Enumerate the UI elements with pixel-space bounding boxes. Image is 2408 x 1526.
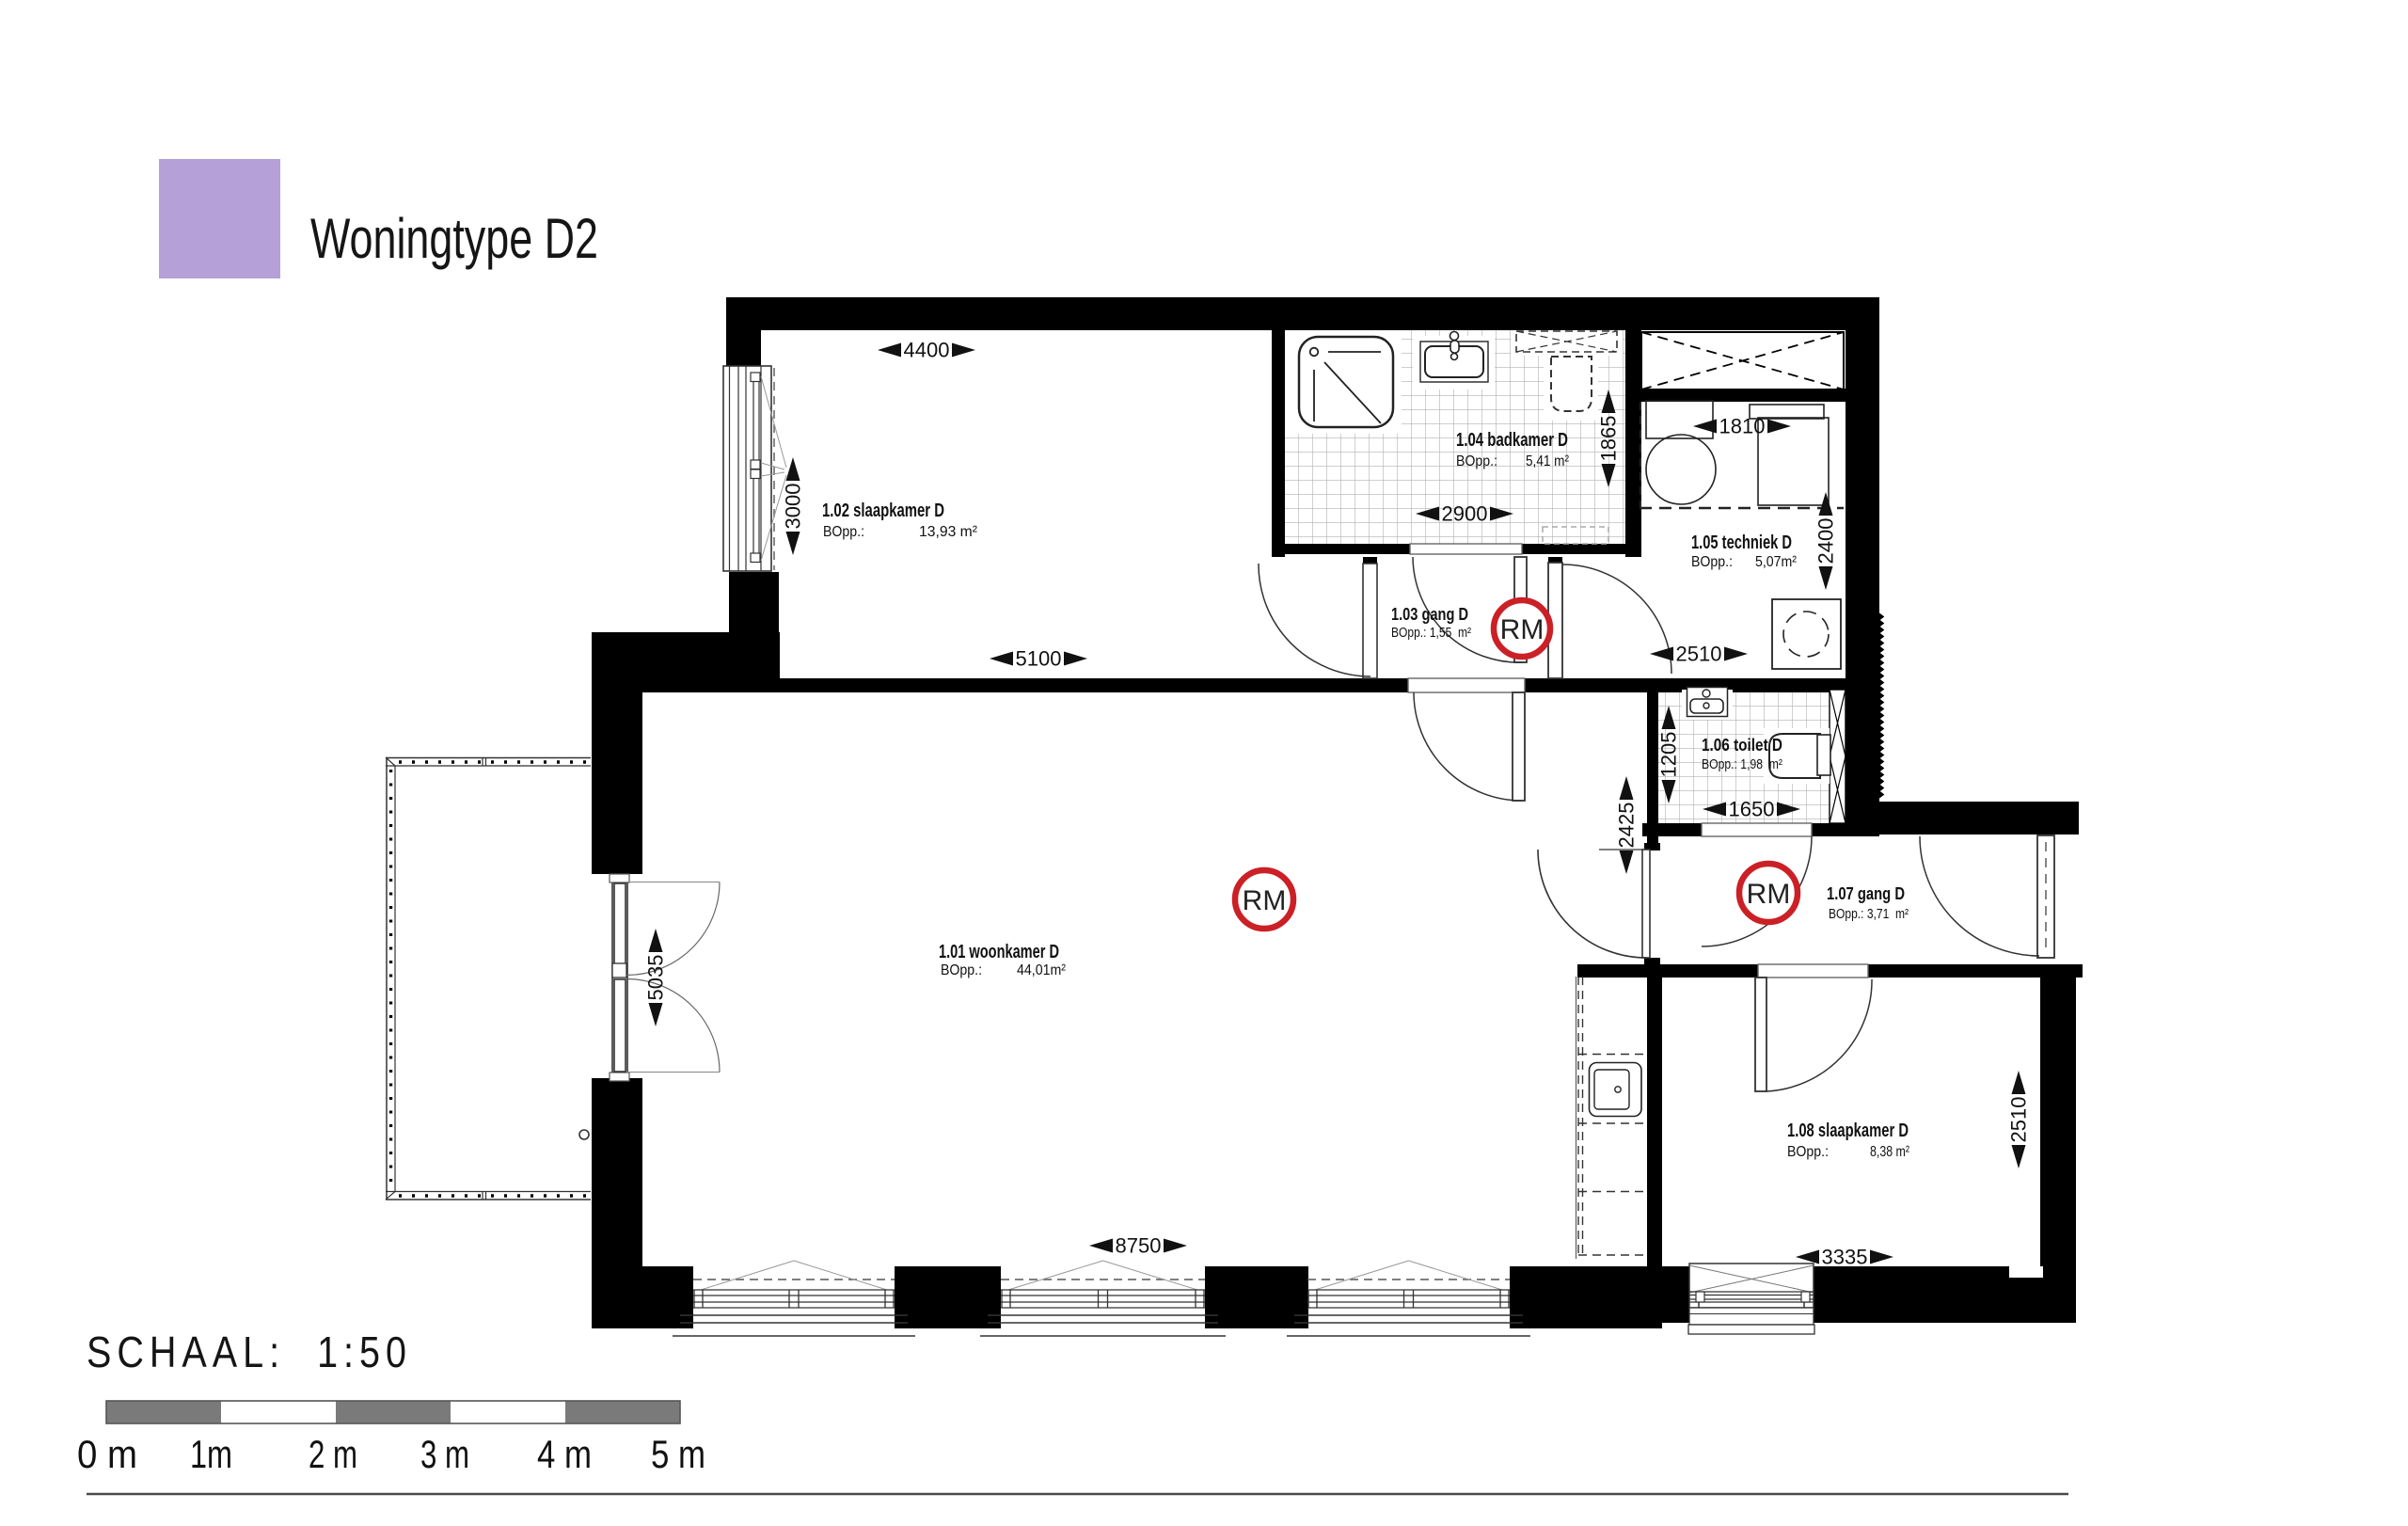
svg-text:1.03 gang D: 1.03 gang D (1391, 605, 1468, 624)
svg-text:1.08 slaapkamer D: 1.08 slaapkamer D (1787, 1121, 1909, 1141)
svg-text:BOpp.:: BOpp.: (941, 962, 982, 978)
svg-text:1205: 1205 (1657, 732, 1681, 778)
svg-text:BOpp.: 1,55 m²: BOpp.: 1,55 m² (1391, 626, 1471, 641)
svg-text:Woningtype D2: Woningtype D2 (310, 207, 598, 270)
svg-text:3000: 3000 (782, 484, 805, 530)
svg-text:5,07m²: 5,07m² (1755, 554, 1798, 570)
svg-text:1.07 gang D: 1.07 gang D (1827, 884, 1905, 903)
svg-text:1.01 woonkamer D: 1.01 woonkamer D (939, 942, 1059, 962)
svg-text:RM: RM (1243, 885, 1287, 916)
svg-text:13,93 m²: 13,93 m² (919, 524, 978, 540)
svg-text:5,41 m²: 5,41 m² (1526, 453, 1570, 469)
svg-text:2510: 2510 (2007, 1097, 2031, 1143)
svg-text:SCHAAL: 1:50: SCHAAL: 1:50 (87, 1327, 412, 1376)
svg-text:BOpp.: 3,71 m²: BOpp.: 3,71 m² (1829, 907, 1909, 922)
svg-text:BOpp.:: BOpp.: (1787, 1144, 1829, 1160)
svg-text:2510: 2510 (1676, 643, 1722, 666)
svg-text:5100: 5100 (1016, 647, 1062, 671)
svg-text:5 m: 5 m (651, 1432, 705, 1476)
svg-text:4400: 4400 (904, 339, 950, 362)
svg-text:2425: 2425 (1615, 803, 1639, 849)
svg-text:8750: 8750 (1116, 1234, 1162, 1258)
svg-text:1m: 1m (190, 1432, 232, 1476)
svg-text:2 m: 2 m (309, 1432, 357, 1476)
svg-text:1.05 techniek D: 1.05 techniek D (1691, 533, 1792, 553)
svg-text:1.06 toilet D: 1.06 toilet D (1702, 736, 1782, 755)
svg-text:1.04 badkamer D: 1.04 badkamer D (1456, 430, 1568, 451)
svg-text:44,01m²: 44,01m² (1017, 962, 1067, 978)
svg-text:RM: RM (1500, 614, 1545, 645)
svg-text:2400: 2400 (1814, 518, 1838, 564)
svg-text:BOpp.: 1,98 m²: BOpp.: 1,98 m² (1702, 757, 1782, 772)
svg-text:1865: 1865 (1597, 416, 1621, 462)
svg-text:BOpp.:: BOpp.: (1691, 554, 1733, 570)
svg-text:3335: 3335 (1822, 1246, 1868, 1269)
svg-text:1810: 1810 (1719, 415, 1766, 438)
svg-text:4 m: 4 m (537, 1432, 592, 1476)
svg-text:1650: 1650 (1729, 798, 1775, 821)
svg-text:1.02 slaapkamer D: 1.02 slaapkamer D (822, 501, 944, 521)
svg-text:8,38 m²: 8,38 m² (1870, 1144, 1910, 1160)
svg-text:BOpp.:: BOpp.: (1456, 453, 1497, 469)
svg-text:2900: 2900 (1442, 502, 1488, 526)
svg-text:0 m: 0 m (77, 1432, 137, 1476)
svg-text:BOpp.:: BOpp.: (823, 524, 864, 540)
svg-text:RM: RM (1747, 879, 1791, 910)
svg-text:5035: 5035 (644, 955, 668, 1001)
svg-text:3 m: 3 m (420, 1432, 469, 1476)
